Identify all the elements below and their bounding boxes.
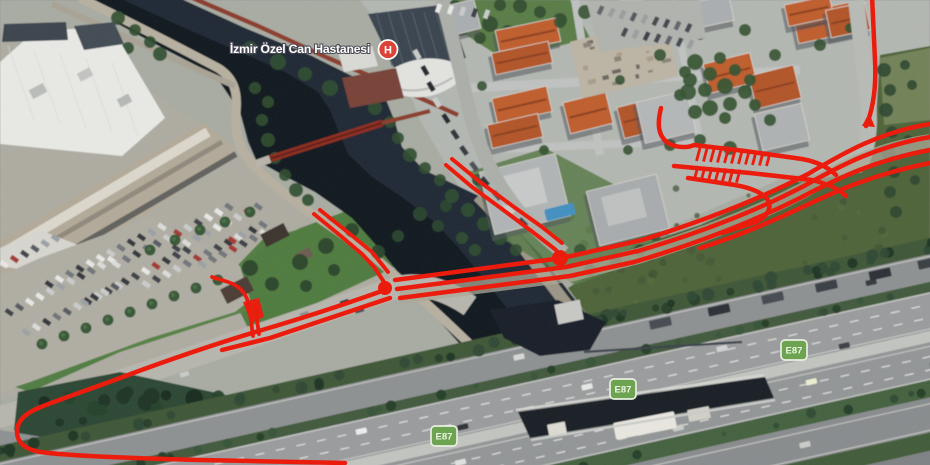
svg-text:İzmir Özel Can Hastanesi: İzmir Özel Can Hastanesi (230, 41, 370, 56)
svg-text:E87: E87 (436, 432, 453, 443)
svg-text:E87: E87 (786, 346, 803, 357)
svg-text:E87: E87 (615, 385, 632, 396)
svg-text:H: H (384, 45, 392, 57)
